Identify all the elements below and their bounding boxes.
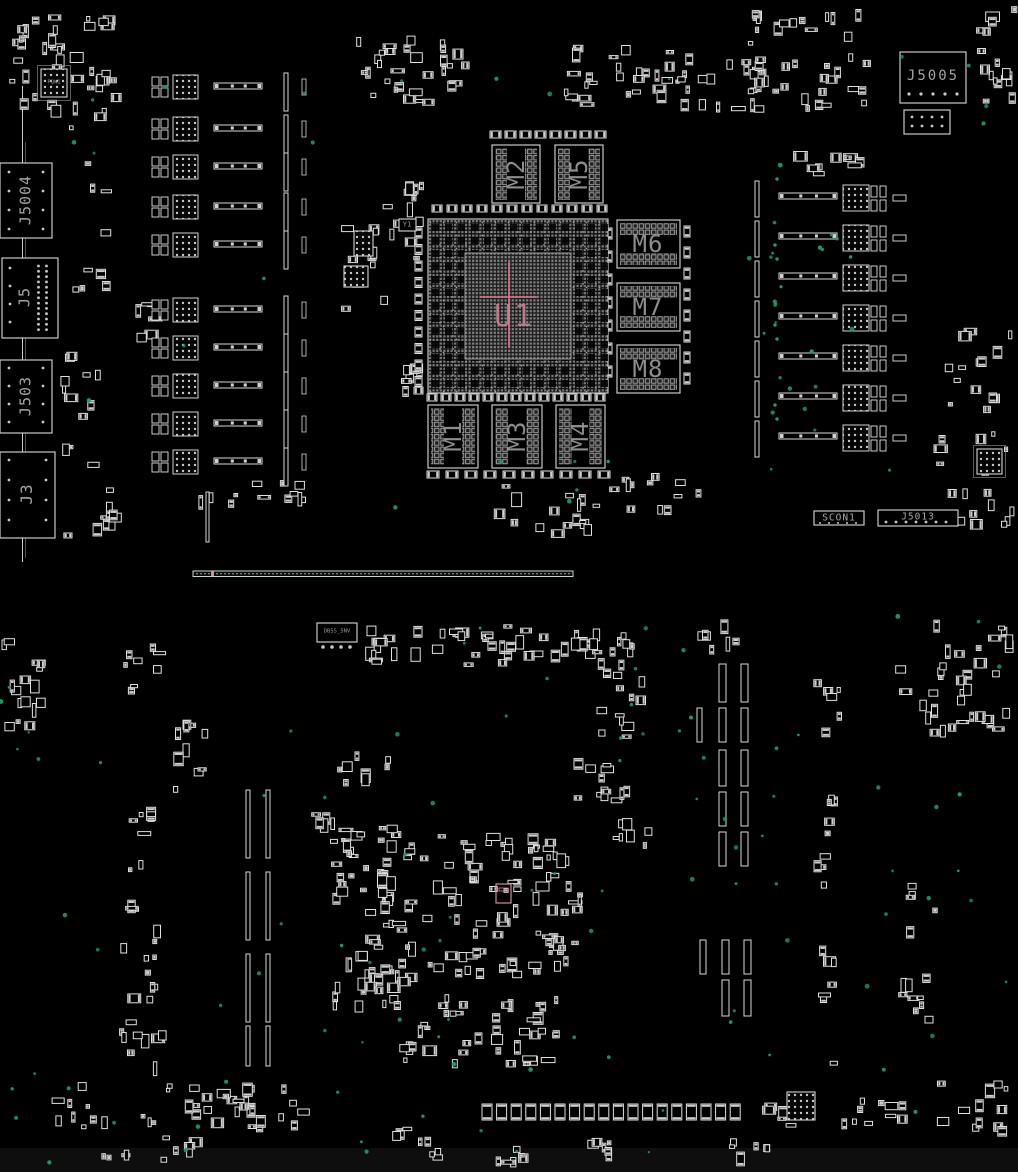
component-cluster	[406, 182, 424, 201]
component-cluster	[338, 752, 391, 786]
boardview-canvas[interactable]: U1 M2 M5 M6 M7 M8 M1 M3 M4 J5005 J5004 J…	[0, 0, 1018, 1172]
component-cluster	[52, 1083, 309, 1132]
component-cluster	[574, 759, 630, 803]
component-cluster	[420, 833, 582, 926]
component-cluster	[120, 1029, 167, 1076]
component-cluster	[124, 644, 166, 694]
component-cluster	[896, 620, 1013, 737]
component-cluster	[613, 819, 652, 849]
component-cluster	[428, 929, 578, 979]
component-cluster	[899, 883, 938, 1023]
component-cluster	[333, 920, 417, 1012]
component-cluster	[842, 1098, 907, 1129]
vertical-bars	[206, 492, 751, 1066]
component-cluster	[129, 807, 156, 871]
component-cluster	[199, 493, 238, 509]
component-cluster	[814, 680, 842, 1065]
component-cluster	[252, 481, 305, 506]
component-cluster	[174, 720, 208, 792]
component-cluster	[945, 328, 1012, 412]
component-cluster	[400, 1022, 560, 1067]
component-cluster	[103, 510, 121, 530]
component-cluster	[366, 626, 422, 664]
component-cluster	[604, 644, 646, 705]
component-cluster	[794, 152, 864, 176]
component-cluster	[121, 900, 161, 961]
bga-u1	[428, 219, 608, 393]
component-cluster	[564, 45, 708, 111]
component-cluster	[331, 825, 417, 915]
board-svg	[0, 0, 1018, 1172]
component-cluster	[698, 620, 739, 654]
component-cluster	[937, 1081, 1007, 1136]
component-cluster	[357, 36, 469, 105]
component-cluster	[610, 474, 701, 515]
component-cluster	[2, 639, 45, 731]
component-cluster	[977, 7, 1017, 104]
highlighted-part	[496, 884, 511, 903]
component-cluster	[494, 485, 599, 538]
component-cluster	[126, 970, 158, 1025]
right-component-rows	[755, 177, 906, 457]
pin-strip-connector	[193, 571, 573, 577]
component-cluster	[432, 625, 548, 667]
component-cluster	[748, 10, 870, 113]
component-cluster	[597, 707, 634, 738]
left-component-rows	[152, 73, 306, 486]
component-cluster	[439, 995, 558, 1025]
component-cluster	[312, 813, 335, 833]
component-cluster	[61, 162, 114, 538]
